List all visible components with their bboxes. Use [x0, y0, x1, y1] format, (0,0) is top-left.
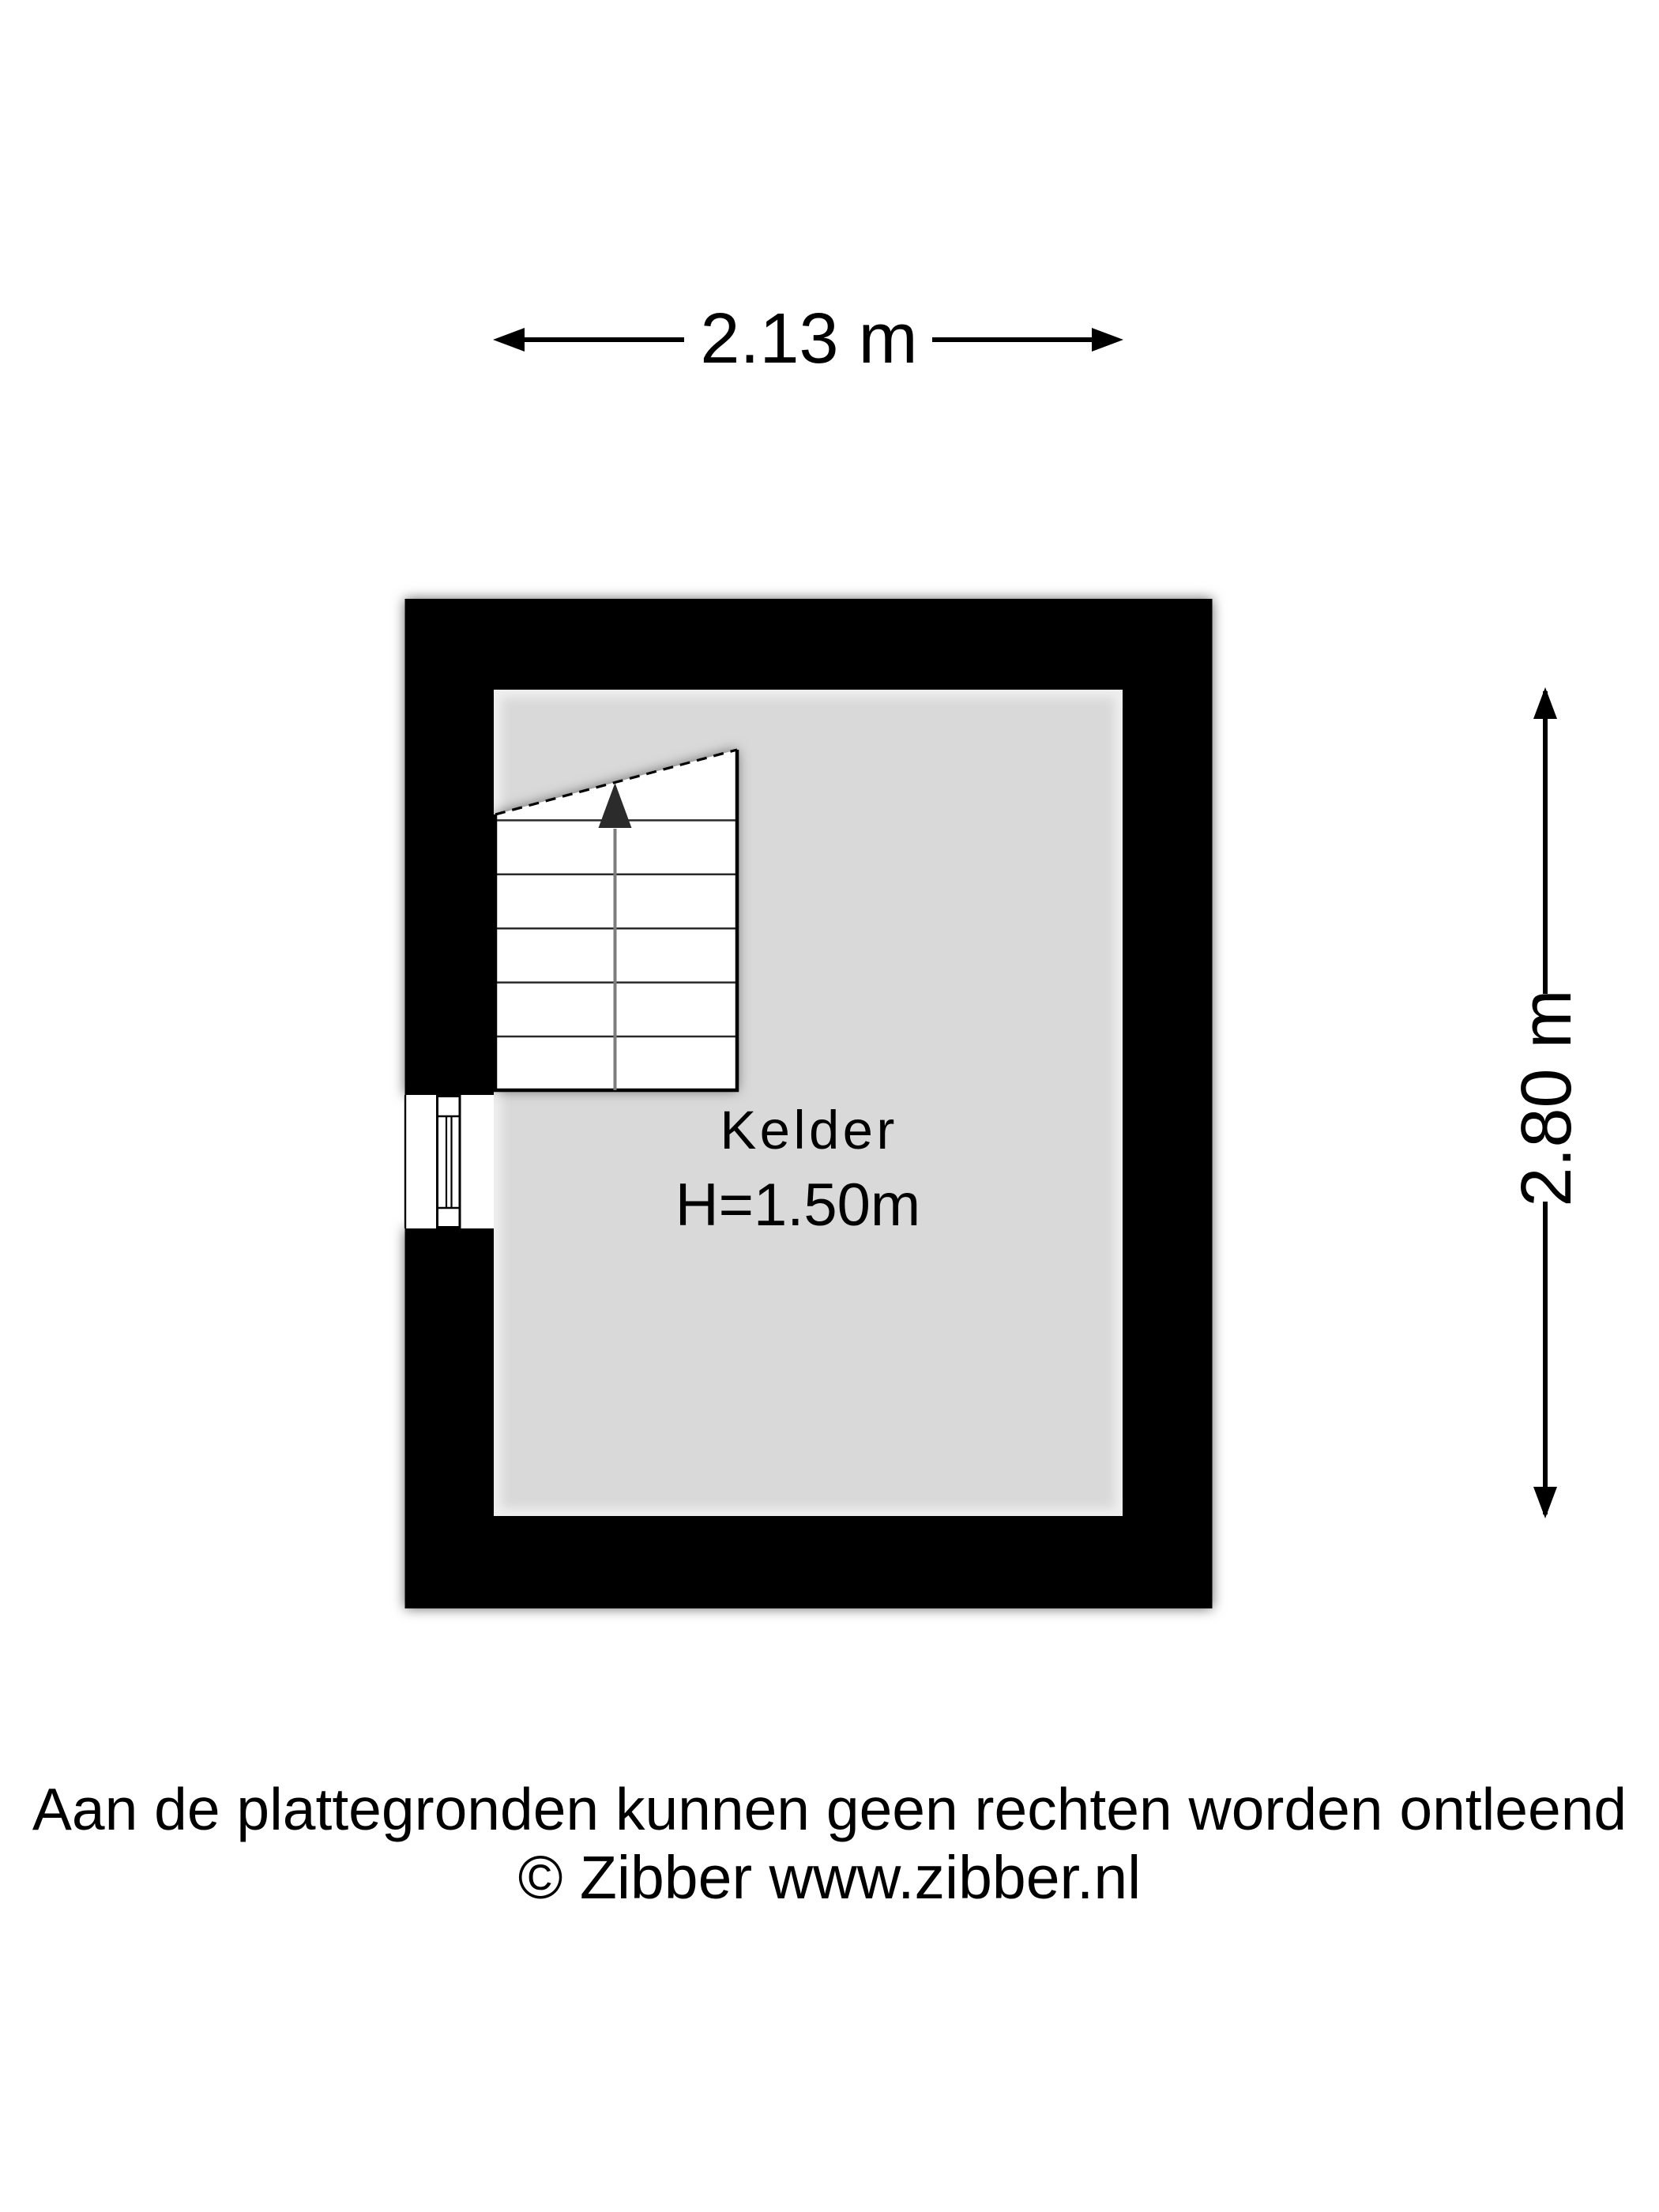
svg-text:Aan de plattegronden kunnen ge: Aan de plattegronden kunnen geen rechten…: [32, 1776, 1627, 1842]
svg-text:H=1.50m: H=1.50m: [675, 1172, 921, 1239]
svg-text:2.13 m: 2.13 m: [700, 299, 917, 378]
svg-text:2.80 m: 2.80 m: [1507, 989, 1586, 1206]
svg-text:© Zibber www.zibber.nl: © Zibber www.zibber.nl: [518, 1844, 1142, 1912]
svg-text:Kelder: Kelder: [720, 1100, 897, 1161]
